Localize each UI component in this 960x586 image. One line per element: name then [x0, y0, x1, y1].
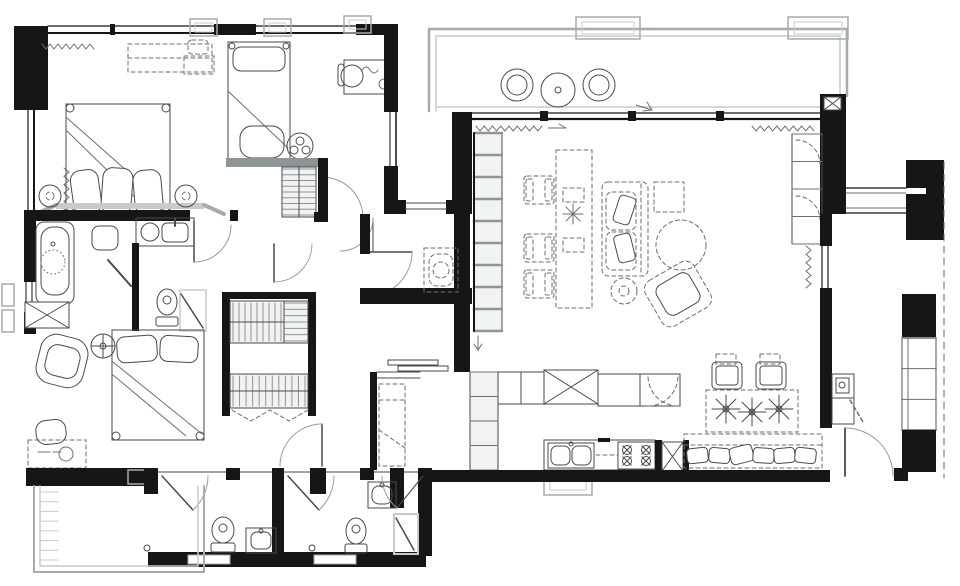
dining-area [684, 354, 822, 468]
south-wall-kitchen-dining [425, 470, 830, 482]
maid-room [370, 360, 448, 470]
corridor-low-cabinet [226, 158, 328, 222]
floor-plan-page [0, 0, 960, 586]
bathroom-a [162, 476, 276, 553]
living-north-window-wall [472, 111, 820, 131]
north-balcony-border [429, 17, 848, 111]
master-bedroom [36, 40, 224, 216]
living-room [524, 150, 715, 331]
storage-room [360, 214, 472, 372]
north-wall-windows [14, 16, 398, 110]
balcony-chairs-table [501, 69, 615, 107]
bedroom-3 [28, 330, 204, 468]
walk-in-closet [222, 292, 316, 421]
bookshelf [474, 133, 502, 350]
floor-plan-canvas [0, 0, 960, 586]
entry-foyer [792, 94, 908, 481]
